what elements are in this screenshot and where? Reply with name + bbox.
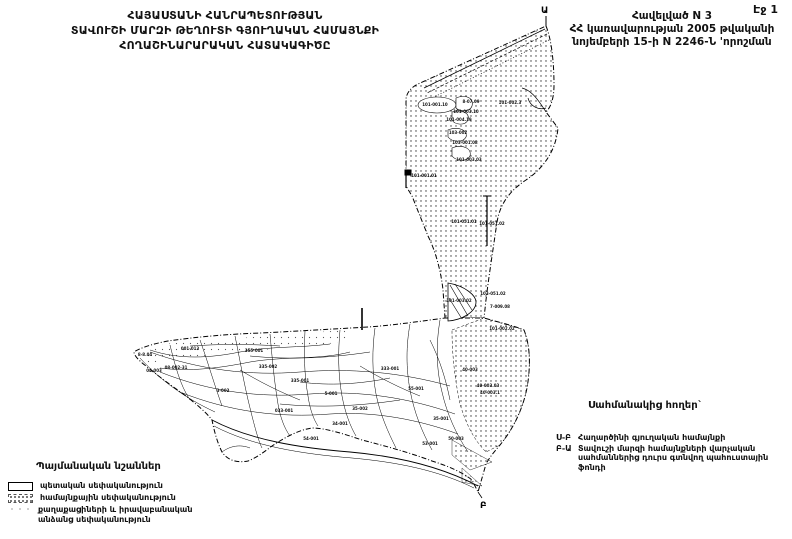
parcel-label: 40-003.1 bbox=[480, 390, 500, 395]
parcel-label: 101-002.3 bbox=[499, 100, 522, 105]
bordering-entry-sb: Ս-Բ Հաղարծինի գյուղական համայնքի bbox=[556, 433, 788, 443]
appendix-reference: Հավելված N 3 ՀՀ կառավարության 2005 թվակա… bbox=[558, 10, 786, 49]
parcel-label: 333-001 bbox=[381, 366, 400, 371]
parcel-label: 7-009.08 bbox=[490, 304, 510, 309]
map-north-strip bbox=[406, 26, 558, 318]
parcel-label: 53-001 bbox=[422, 441, 438, 446]
parcel-label: 355-001 bbox=[245, 348, 264, 353]
parcel-label: 101-051.02 bbox=[479, 221, 505, 226]
parcel-label: 8-07.09 bbox=[462, 99, 479, 104]
legend-item-private: քաղաքացիների և իրավաբանական անձանց սեփակ… bbox=[6, 505, 211, 524]
parcel-label: 101-003.10 bbox=[453, 109, 479, 114]
community-ownership-swatch-icon bbox=[8, 494, 33, 503]
bordering-entry-ba: Բ-Ա Տավուշի մարզի համայնքների վարչական ս… bbox=[556, 444, 788, 473]
parcel-label: 54-001 bbox=[303, 436, 319, 441]
parcel-label: 335-002 bbox=[259, 364, 278, 369]
parcel-label: 101-004.19 bbox=[446, 117, 472, 122]
parcel-label: 101-001.01 bbox=[411, 173, 437, 178]
parcel-label: 101-003.03 bbox=[456, 157, 482, 162]
appendix-line2: ՀՀ կառավարության 2005 թվականի bbox=[558, 23, 786, 36]
plan-sheet: Ա Բ 101-001.10 8-07.09 101-002.3 101-003… bbox=[0, 0, 792, 539]
private-ownership-swatch-icon bbox=[8, 506, 31, 513]
parcel-label: 08-002-31 bbox=[165, 365, 188, 370]
legend-heading: Պայմանական նշաններ bbox=[36, 461, 211, 472]
parcel-label: 101-001.10 bbox=[422, 102, 448, 107]
parcel-label: 50-003 bbox=[448, 436, 464, 441]
legend-item-label: պետական սեփականություն bbox=[40, 481, 200, 491]
parcel-label: 55-001 bbox=[408, 386, 424, 391]
parcel-label: 40-003 bbox=[462, 367, 478, 372]
legend-item-community: համայնքային սեփականություն bbox=[6, 493, 211, 503]
legend: Պայմանական նշաններ պետական սեփականությու… bbox=[6, 461, 211, 526]
appendix-line1: Հավելված N 3 bbox=[558, 10, 786, 23]
parcel-label: 103-001.08 bbox=[452, 140, 478, 145]
parcel-label: 101-003.02 bbox=[446, 298, 472, 303]
parcel-label: 3-002 bbox=[217, 388, 230, 393]
parcel-label: 001-013 bbox=[181, 346, 200, 351]
map-title-line2: ՏԱՎՈՒՇԻ ՄԱՐԶԻ ԹԵՂՈՒՏԻ ԳՅՈՒՂԱԿԱՆ ՀԱՄԱՅՆՔԻ bbox=[52, 23, 398, 38]
bordering-entry-code: Բ-Ա bbox=[556, 444, 578, 473]
parcel-label: 103-051.02 bbox=[480, 291, 506, 296]
map-title-line1: ՀԱՅԱՍՏԱՆԻ ՀԱՆՐԱՊԵՏՈՒԹՅԱՆ bbox=[52, 8, 398, 23]
parcel-label: 033-001 bbox=[275, 408, 294, 413]
parcel-label: 101-051.01 bbox=[451, 219, 477, 224]
parcel-label: 5-001 bbox=[325, 391, 338, 396]
legend-item-label: համայնքային սեփականություն bbox=[40, 493, 200, 503]
legend-item-label: քաղաքացիների և իրավաբանական անձանց սեփակ… bbox=[38, 505, 198, 524]
bordering-entry-label: Հաղարծինի գյուղական համայնքի bbox=[578, 433, 783, 443]
parcel-label: 103-002 bbox=[449, 130, 468, 135]
map-title: ՀԱՅԱՍՏԱՆԻ ՀԱՆՐԱՊԵՏՈՒԹՅԱՆ ՏԱՎՈՒՇԻ ՄԱՐԶԻ Թ… bbox=[52, 8, 398, 53]
parcel-label: 35-002 bbox=[352, 406, 368, 411]
map-title-line3: ՀՈՂԱՇԻՆԱՐԱՐԱԿԱՆ ՀԱՏԱԿԱԳԻԾԸ bbox=[52, 38, 398, 53]
bordering-lands: Սահմանակից հողեր` Ս-Բ Հաղարծինի գյուղակա… bbox=[556, 400, 788, 473]
boundary-point-b-label: Բ bbox=[480, 501, 487, 511]
state-ownership-swatch-icon bbox=[8, 482, 33, 491]
boundary-point-a-label: Ա bbox=[541, 6, 548, 16]
parcel-label: 34-001 bbox=[332, 421, 348, 426]
legend-item-state: պետական սեփականություն bbox=[6, 481, 211, 491]
parcel-label: 40-003.03 bbox=[477, 383, 500, 388]
parcel-label: 04-003 bbox=[146, 368, 162, 373]
bordering-entry-code: Ս-Բ bbox=[556, 433, 578, 443]
parcel-label: 101-002.02 bbox=[489, 326, 515, 331]
parcel-label: 8-8.04 bbox=[138, 352, 153, 357]
appendix-line3: նոյեմբերի 15-ի N 2246-Ն 'որոշման bbox=[558, 36, 786, 49]
bordering-lands-heading: Սահմանակից հողեր` bbox=[588, 400, 788, 411]
parcel-label: 335-001 bbox=[291, 378, 310, 383]
bordering-entry-label: Տավուշի մարզի համայնքների վարչական սահմա… bbox=[578, 444, 783, 473]
parcel-label: 35-001 bbox=[433, 416, 449, 421]
